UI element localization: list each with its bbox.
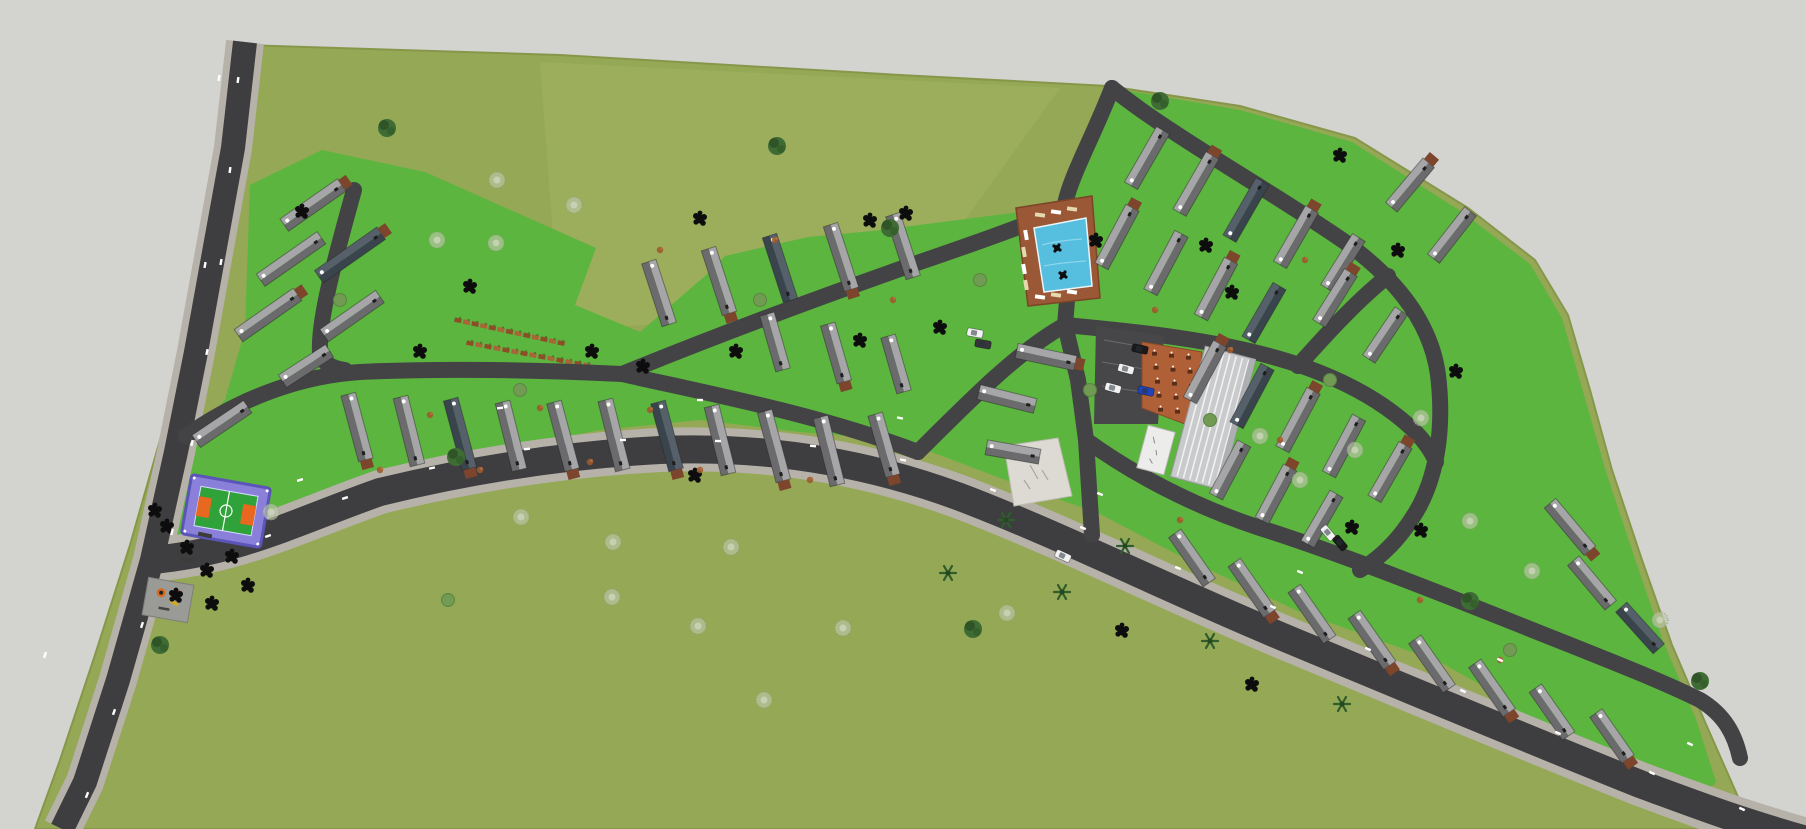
picnic-table-top [1157, 378, 1159, 380]
picnic-table [1169, 354, 1174, 358]
tree-pale-shrub [429, 232, 445, 248]
garden-plant-leaf [489, 343, 491, 345]
picnic-table [1186, 356, 1191, 360]
picnic-table [1158, 408, 1163, 412]
tree-medium-green [334, 294, 347, 307]
pool-water [1034, 218, 1092, 292]
garden-plant-leaf [468, 319, 470, 321]
tree-dark-green [964, 620, 982, 638]
tree-pale-shrub [690, 618, 706, 634]
tree-pale-shrub [756, 692, 772, 708]
tree-medium-green [754, 294, 767, 307]
tree-dark-green [151, 636, 169, 654]
tree-pale-shrub [513, 509, 529, 525]
tree-pale-shrub [604, 589, 620, 605]
garden-plant-leaf [528, 332, 530, 334]
garden-plant-leaf [507, 347, 509, 349]
picnic-table-top [1160, 406, 1162, 408]
tree-dark-green [1151, 92, 1169, 110]
garden-plant-leaf [502, 326, 504, 328]
picnic-table-top [1171, 352, 1173, 354]
garden-plant-leaf [459, 317, 461, 319]
garden-plant-leaf [561, 357, 563, 359]
garden-plant-leaf [525, 350, 527, 352]
garden-plant-leaf [534, 352, 536, 354]
garden-plant-leaf [476, 321, 478, 323]
garden-plant-leaf [480, 342, 482, 344]
tree-medium-green [514, 384, 527, 397]
tree-medium-green [1204, 414, 1217, 427]
rust-bush [647, 407, 653, 413]
garden-plant-leaf [543, 354, 545, 356]
picnic-table [1171, 368, 1176, 372]
site-plan-render [0, 0, 1806, 829]
picnic-table [1155, 380, 1160, 384]
picnic-table-top [1174, 380, 1176, 382]
picnic-table [1157, 394, 1162, 398]
garden-plant-leaf [536, 334, 538, 336]
tree-dark-green [1691, 672, 1709, 690]
rust-bush [890, 297, 896, 303]
picnic-table [1172, 382, 1177, 386]
garden-plant-leaf [562, 340, 564, 342]
garden-plant-leaf [554, 338, 556, 340]
street-lamp [697, 399, 703, 402]
picnic-table [1174, 396, 1179, 400]
tree-pale-shrub [1413, 410, 1429, 426]
tree-pale-shrub [999, 605, 1015, 621]
car-windshield [971, 330, 978, 336]
garden-plant-leaf [570, 359, 572, 361]
rust-bush [537, 405, 543, 411]
rust-bush [477, 467, 483, 473]
picnic-table-top [1177, 408, 1179, 410]
rust-bush [1277, 437, 1283, 443]
tree-pale-shrub [1252, 428, 1268, 444]
rust-bush [377, 467, 383, 473]
tree-dark-green [378, 119, 396, 137]
tree-pale-shrub [566, 197, 582, 213]
tree-pale-shrub [1347, 442, 1363, 458]
rust-bush [1417, 597, 1423, 603]
rust-bush [772, 237, 778, 243]
garden-plant-leaf [552, 355, 554, 357]
picnic-table-top [1158, 392, 1160, 394]
terrain-layer [0, 0, 1806, 829]
rust-bush [1302, 257, 1308, 263]
tree-pale-shrub [488, 235, 504, 251]
rust-bush [1227, 347, 1233, 353]
car-windshield [979, 341, 986, 347]
tree-medium-green [1084, 384, 1097, 397]
garden-plant-leaf [498, 345, 500, 347]
rust-bush [807, 477, 813, 483]
rust-bush [1152, 307, 1158, 313]
site-plan-canvas [0, 0, 1806, 829]
tree-pale-shrub [1292, 472, 1308, 488]
garden-plant-leaf [545, 336, 547, 338]
picnic-table-top [1189, 368, 1191, 370]
rust-bush [587, 459, 593, 465]
tree-medium-green [1324, 374, 1337, 387]
garden-plant-leaf [485, 323, 487, 325]
picnic-table [1152, 352, 1157, 356]
tree-dark-green [447, 448, 465, 466]
street-lamp [715, 440, 721, 443]
garden-plant-leaf [516, 348, 518, 350]
tree-dark-green [768, 137, 786, 155]
rust-bush [427, 412, 433, 418]
tree-pale-shrub [263, 504, 279, 520]
garden-plant-leaf [519, 330, 521, 332]
rust-bush [697, 467, 703, 473]
picnic-table [1175, 410, 1180, 414]
tree-dark-green [1461, 592, 1479, 610]
tree-pale-shrub [1462, 513, 1478, 529]
street-lamp [620, 439, 626, 442]
sports-court [181, 475, 270, 548]
picnic-table-top [1188, 354, 1190, 356]
picnic-table [1154, 366, 1159, 370]
tree-medium-green [442, 594, 455, 607]
tree-pale-shrub [1652, 612, 1668, 628]
tree-pale-shrub [489, 172, 505, 188]
garden-plant-leaf [493, 325, 495, 327]
playground [142, 577, 194, 622]
garden-plant-leaf [579, 360, 581, 362]
picnic-table-top [1175, 394, 1177, 396]
tree-medium-green [974, 274, 987, 287]
tree-pale-shrub [835, 620, 851, 636]
tree-dark-green [881, 219, 899, 237]
garden-plant-leaf [471, 340, 473, 342]
garden-plant-leaf [588, 362, 590, 364]
swimming-pool [1016, 196, 1100, 306]
tree-pale-shrub [605, 534, 621, 550]
rust-bush [657, 247, 663, 253]
picnic-table-top [1154, 350, 1156, 352]
tree-pale-shrub [723, 539, 739, 555]
picnic-table-top [1172, 366, 1174, 368]
garden-plant-leaf [511, 328, 513, 330]
tree-pale-shrub [1524, 563, 1540, 579]
rust-bush [1177, 517, 1183, 523]
picnic-table-top [1155, 364, 1157, 366]
playground-pad [142, 577, 194, 622]
tree-medium-green [1504, 644, 1517, 657]
picnic-table [1188, 370, 1193, 374]
